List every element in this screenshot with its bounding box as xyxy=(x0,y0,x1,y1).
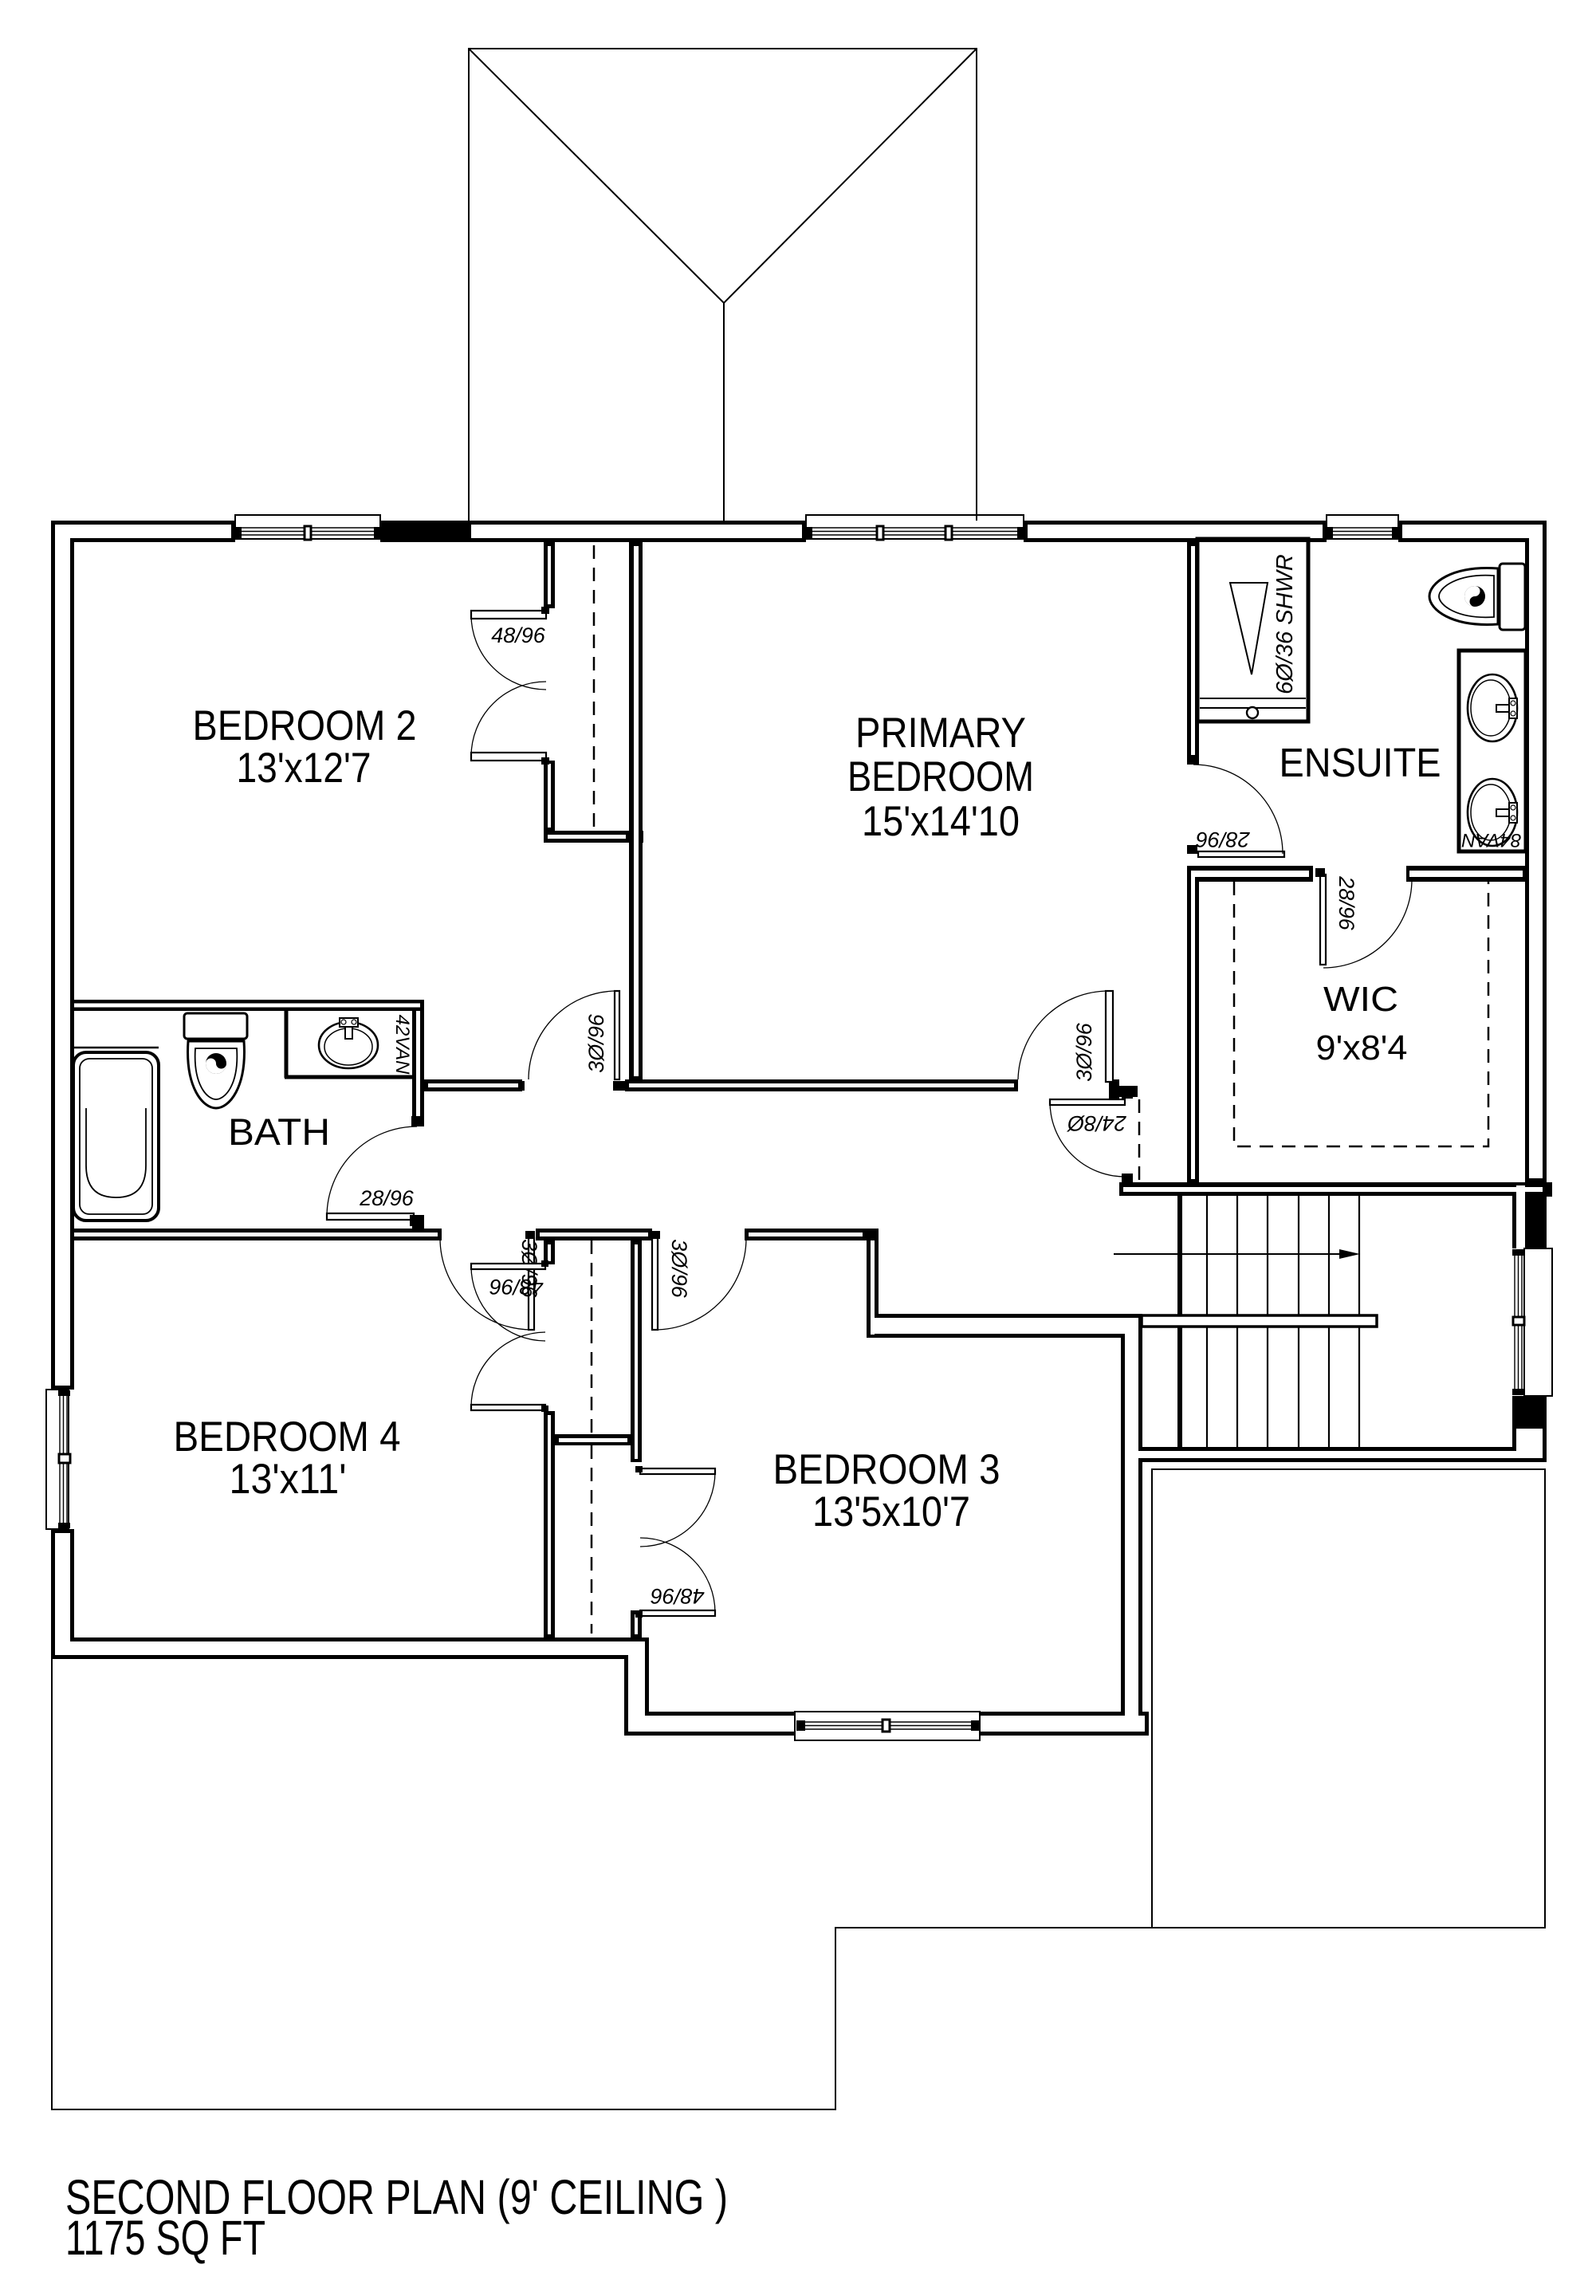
svg-text:BEDROOM 4: BEDROOM 4 xyxy=(174,1413,401,1461)
svg-text:13'x11': 13'x11' xyxy=(230,1456,347,1503)
svg-text:BEDROOM 2: BEDROOM 2 xyxy=(193,702,417,749)
svg-text:28/96: 28/96 xyxy=(1335,875,1358,931)
svg-text:13'5x10'7: 13'5x10'7 xyxy=(812,1488,970,1535)
svg-text:24/8Ø: 24/8Ø xyxy=(1066,1111,1127,1135)
svg-text:BATH: BATH xyxy=(228,1111,330,1153)
svg-text:3Ø/96: 3Ø/96 xyxy=(1072,1022,1096,1082)
svg-text:PRIMARY: PRIMARY xyxy=(855,710,1026,757)
svg-text:1175 SQ FT: 1175 SQ FT xyxy=(65,2211,265,2265)
svg-text:3Ø/96: 3Ø/96 xyxy=(667,1239,691,1299)
svg-text:42VAN: 42VAN xyxy=(391,1015,413,1075)
svg-text:48/96: 48/96 xyxy=(491,623,546,647)
svg-text:28/96: 28/96 xyxy=(1195,828,1251,851)
svg-text:28/96: 28/96 xyxy=(359,1186,415,1210)
svg-text:13'x12'7: 13'x12'7 xyxy=(237,745,371,792)
svg-text:BEDROOM 3: BEDROOM 3 xyxy=(773,1446,1000,1493)
svg-text:ENSUITE: ENSUITE xyxy=(1280,740,1441,785)
svg-text:6Ø/36 SHWR: 6Ø/36 SHWR xyxy=(1272,554,1298,694)
svg-text:3Ø/96: 3Ø/96 xyxy=(584,1013,608,1073)
svg-text:48/96: 48/96 xyxy=(650,1584,705,1608)
svg-text:84VAN: 84VAN xyxy=(1461,829,1521,851)
svg-text:48/96: 48/96 xyxy=(489,1275,544,1299)
svg-text:9'x8'4: 9'x8'4 xyxy=(1316,1028,1408,1067)
svg-text:BEDROOM: BEDROOM xyxy=(847,753,1034,800)
svg-text:WIC: WIC xyxy=(1323,980,1398,1019)
svg-text:15'x14'10: 15'x14'10 xyxy=(862,798,1020,845)
